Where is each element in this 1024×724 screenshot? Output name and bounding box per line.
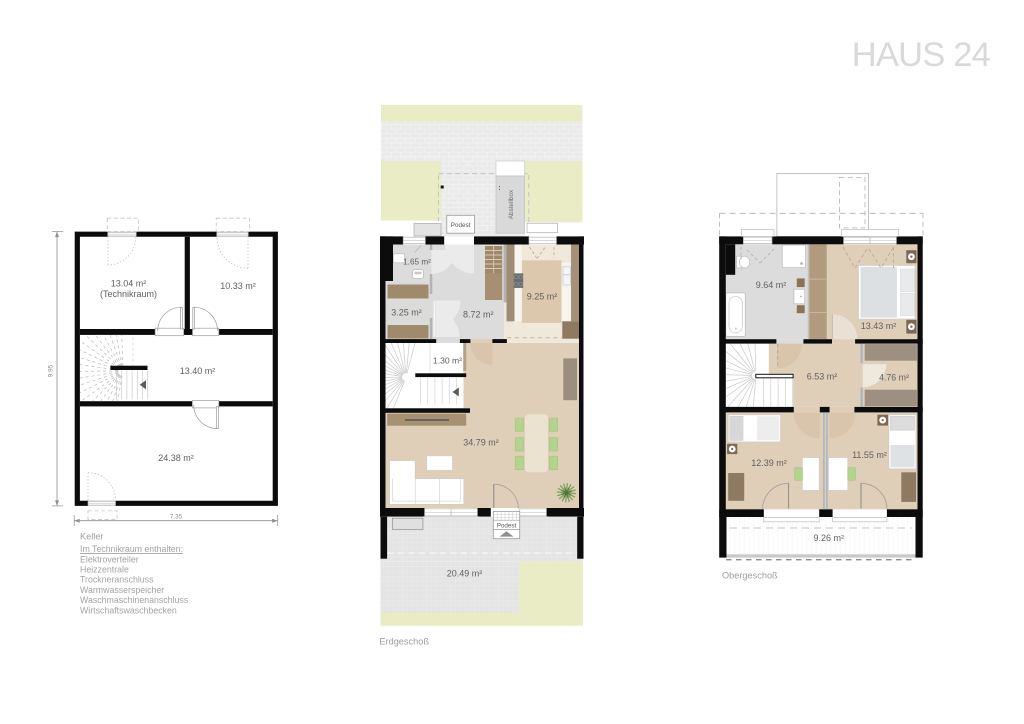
svg-text:Elektroverteiler: Elektroverteiler	[80, 554, 139, 564]
svg-text:12.39 m²: 12.39 m²	[751, 458, 787, 468]
svg-text:6.53 m²: 6.53 m²	[807, 372, 838, 382]
svg-text:8.72 m²: 8.72 m²	[463, 310, 494, 320]
svg-text:1.65 m²: 1.65 m²	[403, 258, 431, 267]
svg-text:Im Technikraum enthalten:: Im Technikraum enthalten:	[80, 544, 183, 554]
svg-text:10.33 m²: 10.33 m²	[220, 281, 256, 291]
svg-text:11.55 m²: 11.55 m²	[852, 450, 887, 460]
svg-text:7.35: 7.35	[170, 513, 183, 520]
svg-text:9.64 m²: 9.64 m²	[756, 280, 787, 290]
svg-text:9.95: 9.95	[48, 364, 55, 377]
svg-text:Heizzentrale: Heizzentrale	[80, 565, 129, 575]
svg-text:9.26 m²: 9.26 m²	[813, 533, 844, 543]
svg-text:Waschmaschinenanschluss: Waschmaschinenanschluss	[80, 595, 189, 605]
svg-text:20.49 m²: 20.49 m²	[447, 569, 483, 579]
svg-text:13.04 m²: 13.04 m²	[111, 279, 147, 289]
svg-text:(Technikraum): (Technikraum)	[100, 289, 157, 299]
svg-text:Trockneranschluss: Trockneranschluss	[80, 575, 154, 585]
svg-text:9.25 m²: 9.25 m²	[527, 292, 558, 302]
svg-text:1.30 m²: 1.30 m²	[433, 356, 462, 366]
svg-text:34.79 m²: 34.79 m²	[463, 438, 499, 448]
svg-text:Warmwasserspeicher: Warmwasserspeicher	[80, 585, 164, 595]
svg-text:Wirtschaftswaschbecken: Wirtschaftswaschbecken	[80, 605, 177, 615]
svg-text:HAUS 24: HAUS 24	[852, 36, 991, 74]
svg-text:4.76 m²: 4.76 m²	[879, 373, 909, 383]
svg-text:Keller: Keller	[80, 532, 104, 542]
svg-text:Podest: Podest	[497, 523, 517, 530]
svg-text:Erdgeschoß: Erdgeschoß	[379, 637, 429, 647]
svg-text:Obergeschoß: Obergeschoß	[722, 571, 778, 581]
svg-text:13.40 m²: 13.40 m²	[180, 366, 216, 376]
svg-text:3.25 m²: 3.25 m²	[391, 308, 422, 318]
svg-text:Podest: Podest	[451, 222, 471, 229]
svg-text:13.43 m²: 13.43 m²	[861, 321, 897, 331]
svg-text:24.38 m²: 24.38 m²	[158, 453, 194, 463]
svg-text:Abstellbox: Abstellbox	[508, 189, 515, 219]
